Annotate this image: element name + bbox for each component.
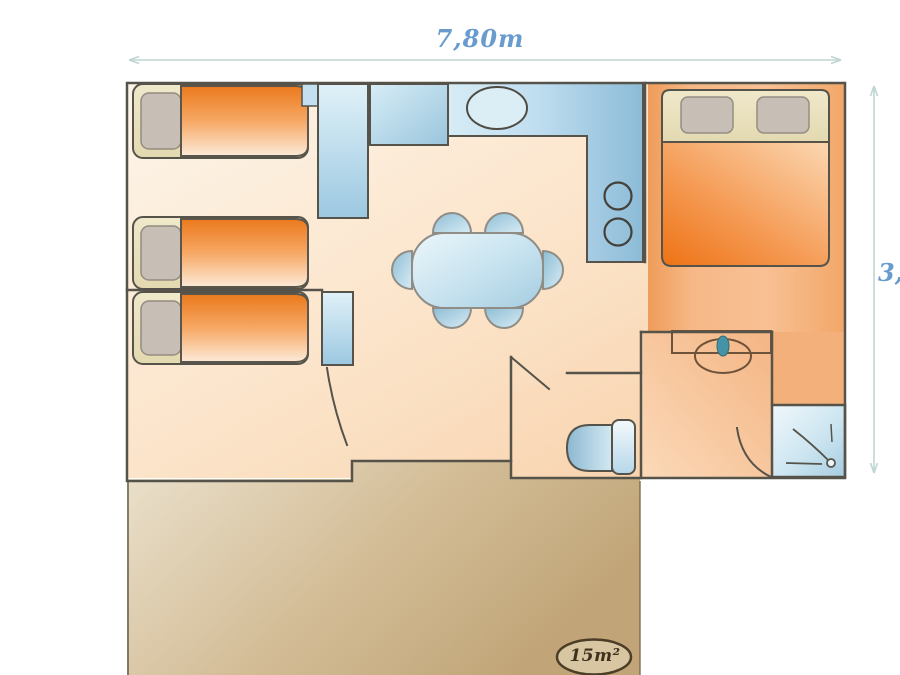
single-bed-2 — [133, 217, 308, 289]
duvet — [662, 142, 829, 266]
toilet-bowl — [567, 425, 612, 471]
bedroom-floor-strip — [772, 332, 845, 406]
height-dimension-label: 3, — [878, 258, 900, 287]
duvet — [181, 219, 308, 287]
duvet — [181, 86, 308, 156]
shower-detail-line — [831, 424, 832, 442]
duvet — [181, 294, 308, 362]
terrace-area-label: 15m² — [556, 646, 634, 666]
shelf — [302, 84, 318, 106]
dining-table — [412, 233, 543, 308]
toilet-tank — [612, 420, 635, 474]
pillow — [757, 97, 809, 133]
single-bed-3 — [133, 292, 308, 364]
single-bed-1 — [133, 84, 308, 158]
pillow — [141, 226, 181, 280]
pillow — [141, 93, 181, 149]
floor-plan-canvas: 7,80m 3, 15m² — [0, 0, 900, 675]
faucet — [717, 336, 729, 356]
terrace-deck — [127, 461, 640, 675]
terrace — [127, 461, 640, 675]
wc — [567, 420, 635, 474]
shower-drain — [827, 459, 835, 467]
shower-detail-line — [786, 463, 822, 464]
width-dimension-label: 7,80m — [404, 24, 556, 53]
floor-plan-drawing — [0, 0, 900, 675]
wardrobe — [318, 84, 368, 218]
fridge-cabinet — [370, 84, 448, 145]
low-cabinet — [322, 292, 353, 365]
pillow — [681, 97, 733, 133]
pillow — [141, 301, 181, 355]
double-bed — [662, 90, 829, 266]
kitchen-sink — [467, 87, 527, 129]
